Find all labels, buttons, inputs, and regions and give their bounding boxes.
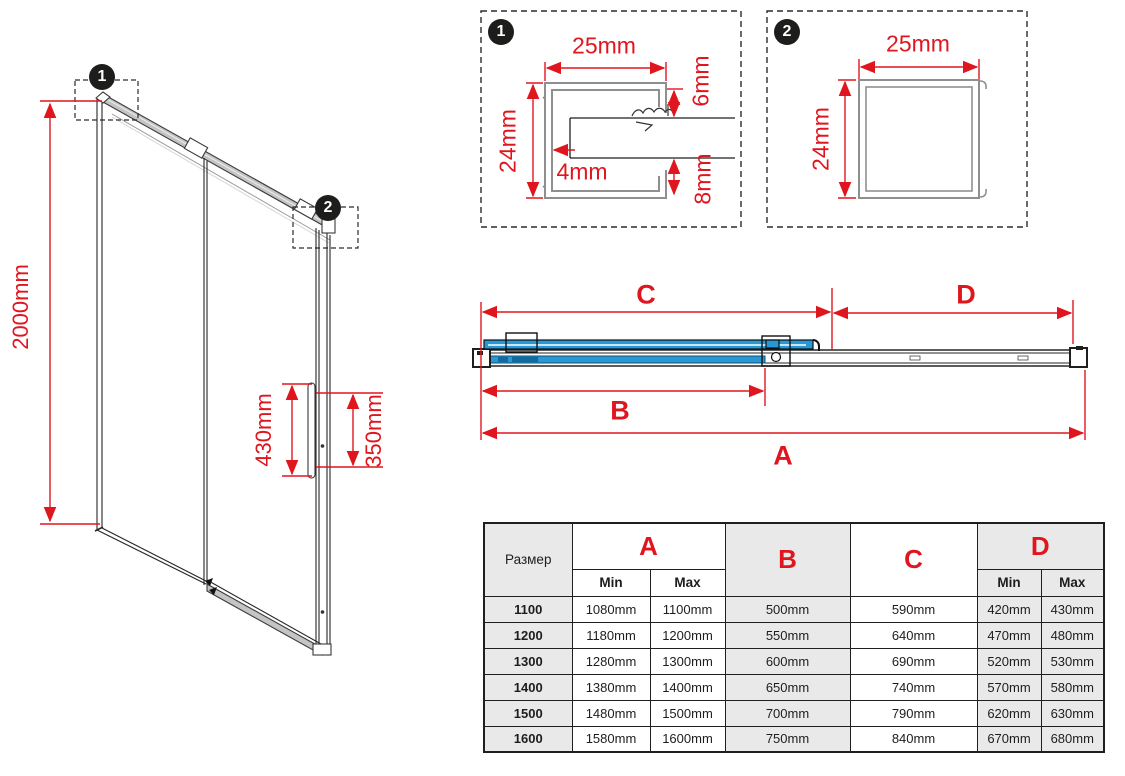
table-row: 16001580mm1600mm750mm840mm670mm680mm: [484, 726, 1104, 752]
table-cell-b: 700mm: [725, 700, 850, 726]
column-a-header: A: [572, 523, 725, 569]
size-table-body: 11001080mm1100mm500mm590mm420mm430mm1200…: [484, 596, 1104, 752]
table-cell-a_max: 1500mm: [650, 700, 725, 726]
column-d-header: D: [977, 523, 1104, 569]
door-height-dimension-label: 2000mm: [8, 264, 34, 350]
table-cell-d_max: 480mm: [1041, 622, 1104, 648]
detail-2-number-badge: 2: [774, 19, 800, 45]
table-cell-c: 840mm: [850, 726, 977, 752]
table-cell-d_max: 530mm: [1041, 648, 1104, 674]
table-cell-size: 1300: [484, 648, 572, 674]
d-max-header: Max: [1041, 569, 1104, 596]
detail-2-height-label: 24mm: [808, 107, 835, 171]
table-cell-size: 1200: [484, 622, 572, 648]
column-c-header: C: [850, 523, 977, 596]
isometric-door-group: [40, 80, 383, 655]
table-cell-size: 1500: [484, 700, 572, 726]
table-cell-b: 750mm: [725, 726, 850, 752]
detail-1-height-label: 24mm: [495, 109, 522, 173]
plan-dim-d-label: D: [956, 280, 976, 311]
table-cell-a_min: 1080mm: [572, 596, 650, 622]
callout-1-marker: 1: [89, 64, 115, 90]
table-cell-d_max: 680mm: [1041, 726, 1104, 752]
table-cell-c: 690mm: [850, 648, 977, 674]
table-cell-size: 1100: [484, 596, 572, 622]
plan-section-group: [472, 288, 1087, 440]
table-cell-a_max: 1300mm: [650, 648, 725, 674]
plan-dim-a-label: A: [773, 441, 793, 472]
handle-length-dimension-label: 430mm: [251, 393, 277, 466]
table-cell-c: 790mm: [850, 700, 977, 726]
detail-2-width-label: 25mm: [886, 31, 950, 58]
size-column-header: Размер: [484, 523, 572, 596]
table-cell-a_min: 1380mm: [572, 674, 650, 700]
table-cell-d_min: 420mm: [977, 596, 1041, 622]
table-row: 12001180mm1200mm550mm640mm470mm480mm: [484, 622, 1104, 648]
a-max-header: Max: [650, 569, 725, 596]
table-cell-d_max: 430mm: [1041, 596, 1104, 622]
table-cell-size: 1400: [484, 674, 572, 700]
table-cell-d_min: 620mm: [977, 700, 1041, 726]
table-cell-d_max: 630mm: [1041, 700, 1104, 726]
table-cell-a_min: 1280mm: [572, 648, 650, 674]
handle-holes-dimension-label: 350mm: [361, 394, 387, 467]
column-b-header: B: [725, 523, 850, 596]
table-cell-a_max: 1400mm: [650, 674, 725, 700]
table-row: 13001280mm1300mm600mm690mm520mm530mm: [484, 648, 1104, 674]
table-cell-b: 650mm: [725, 674, 850, 700]
plan-dim-b-label: B: [610, 396, 630, 427]
table-cell-c: 640mm: [850, 622, 977, 648]
plan-dim-c-label: C: [636, 280, 656, 311]
table-row: 14001380mm1400mm650mm740mm570mm580mm: [484, 674, 1104, 700]
table-cell-b: 500mm: [725, 596, 850, 622]
d-min-header: Min: [977, 569, 1041, 596]
table-cell-b: 550mm: [725, 622, 850, 648]
table-cell-size: 1600: [484, 726, 572, 752]
table-cell-a_min: 1580mm: [572, 726, 650, 752]
table-cell-d_min: 470mm: [977, 622, 1041, 648]
table-cell-a_min: 1480mm: [572, 700, 650, 726]
detail-1-bottom-gap-label: 8mm: [690, 153, 717, 204]
shower-door-technical-drawing: 2000mm 430mm 350mm 1 2 1 25mm 24mm 6mm 8…: [0, 0, 1125, 776]
detail-1-width-label: 25mm: [572, 33, 636, 60]
table-cell-d_min: 670mm: [977, 726, 1041, 752]
table-row: 11001080mm1100mm500mm590mm420mm430mm: [484, 596, 1104, 622]
table-cell-d_min: 570mm: [977, 674, 1041, 700]
detail-1-top-gap-label: 6mm: [688, 55, 715, 106]
detail-1-number-badge: 1: [488, 19, 514, 45]
a-min-header: Min: [572, 569, 650, 596]
size-table: Размер A B C D Min Max Min Max 11001080m…: [483, 522, 1105, 753]
table-cell-c: 740mm: [850, 674, 977, 700]
table-cell-d_max: 580mm: [1041, 674, 1104, 700]
table-cell-b: 600mm: [725, 648, 850, 674]
table-cell-a_max: 1200mm: [650, 622, 725, 648]
table-cell-a_min: 1180mm: [572, 622, 650, 648]
detail-1-glass-gap-label: 4mm: [556, 159, 607, 186]
table-cell-d_min: 520mm: [977, 648, 1041, 674]
table-row: 15001480mm1500mm700mm790mm620mm630mm: [484, 700, 1104, 726]
table-cell-a_max: 1100mm: [650, 596, 725, 622]
door-handle: [308, 383, 315, 478]
callout-2-marker: 2: [315, 195, 341, 221]
table-cell-a_max: 1600mm: [650, 726, 725, 752]
table-cell-c: 590mm: [850, 596, 977, 622]
